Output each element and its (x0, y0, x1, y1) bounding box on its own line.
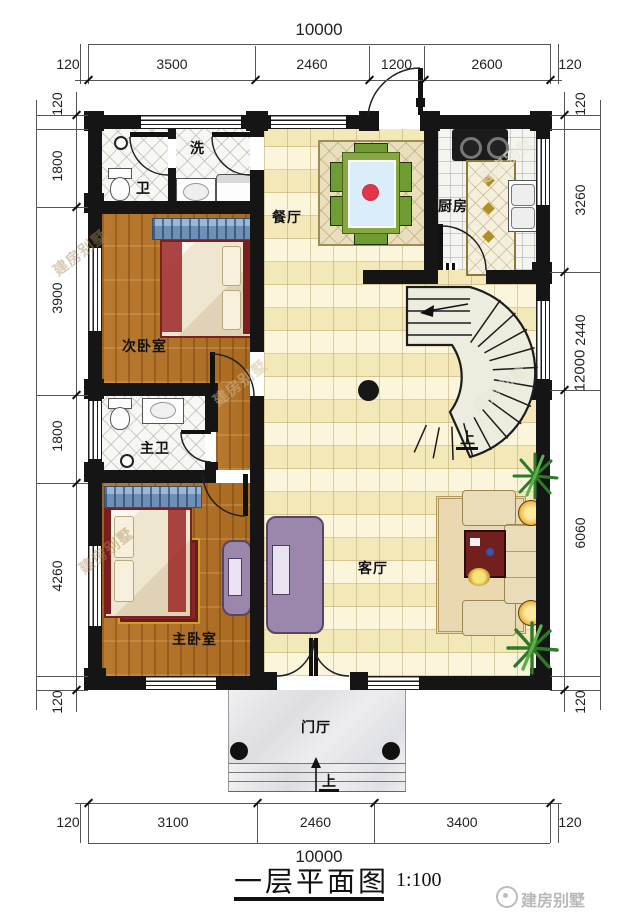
dim-left-4: 4260 (49, 546, 65, 606)
wall-master-top (88, 470, 216, 483)
bedroom2-closet (152, 218, 252, 240)
room-label-bath: 卫 (136, 178, 151, 198)
porch-column (230, 742, 248, 760)
dim-line (88, 843, 550, 844)
table-flower (362, 184, 379, 201)
dim-bottom-0: 120 (50, 814, 86, 830)
pier (84, 193, 104, 213)
dim-line (36, 483, 88, 484)
dim-top-3: 1200 (369, 56, 424, 72)
column (358, 380, 379, 401)
pillow (114, 560, 134, 602)
flower-bouquet (468, 568, 490, 586)
dim-left-5: 120 (49, 682, 65, 722)
sink-basin (150, 402, 176, 419)
laundry-basin (183, 183, 209, 201)
pier (530, 668, 552, 690)
pier (84, 668, 106, 690)
tv-screen-bedroom (228, 558, 242, 596)
dim-top-4: 2600 (424, 56, 550, 72)
logo-icon-dot (503, 893, 508, 898)
dim-bottom-4: 120 (552, 814, 588, 830)
coffee-table-item (486, 548, 494, 556)
window (270, 115, 347, 129)
dim-top-5: 120 (552, 56, 588, 72)
porch-step (228, 781, 406, 792)
sofa (504, 524, 540, 604)
wall-w1 (250, 170, 264, 352)
wall-bedroom2-bottom (88, 383, 218, 396)
door-threshold (440, 263, 458, 270)
room-label-bedroom2: 次卧室 (122, 336, 167, 356)
dim-line (550, 129, 601, 130)
master-closet (104, 486, 202, 508)
window (140, 115, 242, 129)
window (536, 300, 550, 380)
dim-line (564, 92, 565, 712)
room-label-master-bedroom: 主卧室 (172, 629, 217, 649)
room-label-master-bath: 主卫 (140, 438, 170, 458)
pillow (222, 246, 241, 286)
dim-line (36, 676, 88, 677)
plan-scale: 1:100 (396, 869, 442, 892)
tv-screen-living (272, 545, 290, 595)
room-label-laundry: 洗 (190, 138, 205, 158)
dim-line (75, 80, 562, 81)
pier (420, 111, 440, 131)
stair-up-underline (456, 447, 478, 450)
dim-line (36, 207, 88, 208)
toilet-bowl (110, 407, 130, 430)
window (536, 138, 550, 206)
coffee-table-item (470, 538, 480, 546)
dim-line (88, 44, 550, 45)
pillow (222, 290, 241, 330)
wall-jamb (205, 462, 218, 470)
dim-right-4: 120 (572, 682, 588, 722)
burner (460, 137, 482, 159)
floor-plan: 卫 洗 餐厅 厨房 次卧室 主卫 主卧室 客厅 门厅 上 上 建房别墅 建房别墅… (0, 0, 640, 917)
plan-title: 一层平面图 (234, 860, 389, 900)
wall-bath-bottom (88, 201, 264, 214)
pier (350, 672, 368, 690)
room-label-foyer: 门厅 (301, 717, 331, 737)
dim-line (550, 676, 601, 677)
dim-right-1: 3260 (572, 170, 588, 230)
wall-kitchen-bottom (486, 270, 536, 284)
dim-bottom-2: 2460 (257, 814, 374, 830)
dim-line (600, 100, 601, 710)
window (88, 400, 102, 460)
pier (246, 111, 268, 131)
pier (359, 111, 379, 131)
window (145, 676, 217, 690)
bedroom2-headboard (243, 240, 250, 334)
title-underline (234, 897, 384, 901)
pier (256, 672, 277, 690)
dim-right-3: 6060 (572, 503, 588, 563)
wall-stair-top (363, 270, 438, 284)
dim-left-1: 1800 (49, 136, 65, 196)
floor-drain (120, 454, 134, 468)
master-blanket (168, 510, 186, 612)
dim-line (36, 395, 88, 396)
armchair (462, 490, 516, 526)
porch-up-label: 上 (322, 771, 337, 791)
pier (530, 111, 552, 131)
dim-line (76, 92, 77, 712)
toilet-bowl (110, 177, 130, 201)
dim-top-total: 10000 (88, 20, 550, 40)
dim-left-2: 3900 (49, 268, 65, 328)
dim-line (36, 129, 88, 130)
dim-line (36, 100, 37, 710)
pier (532, 380, 552, 400)
wall-kitchen-left (424, 115, 438, 284)
bedroom2-blanket (162, 242, 182, 332)
dim-line (75, 803, 562, 804)
room-label-living: 客厅 (358, 558, 388, 578)
dim-line (550, 272, 601, 273)
logo-text: 建房别墅 (521, 887, 585, 911)
sink-basin (511, 184, 535, 206)
dim-bottom-3: 3400 (374, 814, 550, 830)
dim-left-3: 1800 (49, 406, 65, 466)
wall-jamb (168, 129, 176, 139)
room-label-dining: 餐厅 (272, 207, 302, 227)
dim-top-1: 3500 (89, 56, 255, 72)
porch-column (382, 742, 400, 760)
window (88, 247, 102, 332)
wall-w1 (250, 396, 264, 676)
dim-top-2: 2460 (255, 56, 369, 72)
dim-line (550, 803, 551, 843)
dim-right-0: 120 (572, 84, 588, 124)
sink-basin (511, 207, 535, 229)
dim-top-0: 120 (50, 56, 86, 72)
porch-up-underline (319, 789, 339, 792)
room-label-kitchen: 厨房 (438, 196, 468, 216)
pier (532, 262, 552, 284)
dim-left-0: 120 (49, 84, 65, 124)
dim-right-total: 12000 (572, 336, 589, 406)
pier (84, 379, 104, 399)
floor-drain (114, 136, 128, 150)
armchair (462, 600, 516, 636)
pier (84, 111, 104, 131)
entry-door-opening (277, 676, 350, 690)
pier (84, 462, 104, 482)
dim-bottom-1: 3100 (89, 814, 257, 830)
stair-up-label: 上 (460, 427, 476, 448)
